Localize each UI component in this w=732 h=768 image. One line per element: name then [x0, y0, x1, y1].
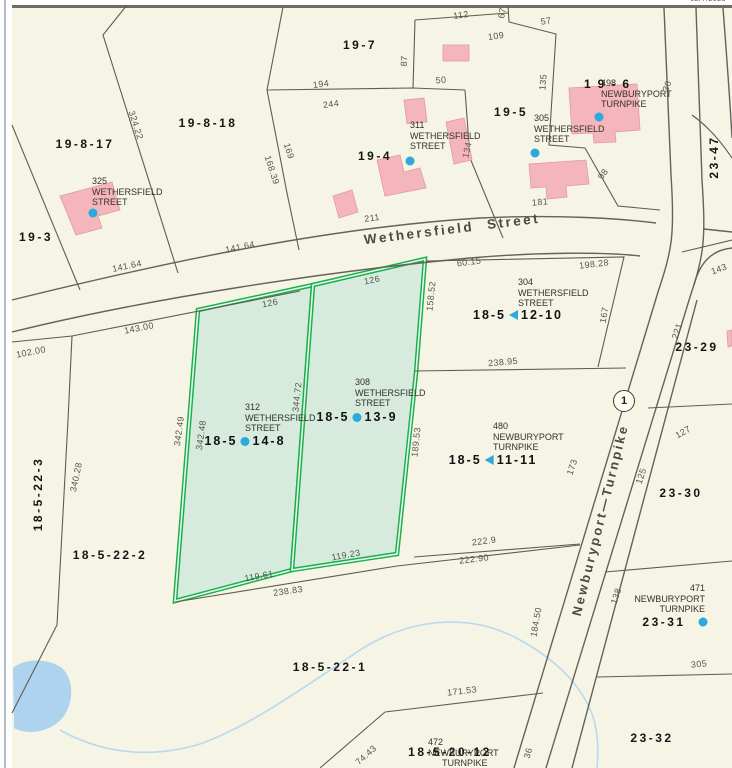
parcel-label-23-30: 23-30 [659, 486, 702, 500]
map-canvas[interactable]: 02/7/2025 Wethersfield Street Newburypor… [0, 0, 732, 768]
parcel-label-suffix: 12-10 [521, 308, 563, 322]
building-small [443, 45, 469, 61]
address-label-471-newburyport: 471NEWBURYPORTTURNPIKE [625, 583, 705, 615]
parcel-label-18-5-13-9: 18-5 13-9 [316, 410, 397, 424]
address-label-312-wethersfield: 312WETHERSFIELDSTREET [245, 402, 316, 434]
parcel-point-marker[interactable] [406, 157, 415, 166]
parcel-label-19-4: 19-4 [358, 149, 392, 163]
parcel-label-23-31: 23-31 [642, 615, 685, 629]
dimension-label: 57 [540, 15, 552, 26]
parcel-label-18-5-22-2: 18-5-22-2 [73, 548, 148, 562]
parcel-label-prefix: 18-5 [449, 453, 482, 467]
dimension-label: 211 [364, 212, 381, 224]
parcel-label-18-5-22-3: 18-5-22-3 [31, 457, 45, 532]
parcel-label-18-5-22-1: 18-5-22-1 [293, 660, 368, 674]
stream [60, 622, 598, 768]
parcel-label-prefix: 18-5 [473, 308, 506, 322]
pond [13, 661, 71, 733]
parcel-label-19-8-17: 19-8-17 [56, 137, 115, 151]
parcel-label-18-5-11-11: 18-5 11-11 [449, 453, 538, 467]
point-marker-icon[interactable] [485, 455, 494, 465]
map-date-stamp: 02/7/2025 [690, 0, 726, 3]
parcel-label-prefix: 18-5 [204, 434, 237, 448]
address-label-305-wethersfield: 305WETHERSFIELDSTREET [534, 113, 605, 145]
route-1-shield: 1 [613, 390, 635, 412]
parcel-label-19-5: 19-5 [494, 105, 528, 119]
parcel-label-19-7: 19-7 [343, 38, 377, 52]
address-label-472-newburyport: 472NEWBURYPORTTURNPIKE [428, 737, 499, 768]
dimension-label: 87 [399, 55, 410, 66]
parcel-label-23-32: 23-32 [630, 731, 673, 745]
parcel-label-suffix: 14-8 [253, 434, 286, 448]
parcel-label-18-5-12-10: 18-5 12-10 [473, 308, 563, 322]
dimension-label: 67 [496, 7, 508, 19]
parcel-label-19-3: 19-3 [19, 230, 53, 244]
parcel-label-23-47: 23-47 [707, 135, 721, 178]
parcel-point-marker[interactable] [89, 209, 98, 218]
building-305 [529, 160, 589, 199]
parcel-label-23-29: 23-29 [675, 340, 718, 354]
address-label-480-newburyport: 480NEWBURYPORTTURNPIKE [493, 421, 564, 453]
dimension-label: 135 [537, 73, 548, 90]
point-marker-icon[interactable] [509, 310, 518, 320]
dimension-label: 305 [690, 658, 707, 669]
address-label-498-newburyport: 498NEWBURYPORTTURNPIKE [601, 78, 672, 110]
building-edge-sliver [727, 330, 732, 347]
turnpike-east-edge-top [723, 8, 732, 138]
parcel-label-prefix: 18-5 [316, 410, 349, 424]
dimension-label: 112 [453, 9, 470, 21]
address-label-308-wethersfield: 308WETHERSFIELDSTREET [355, 377, 426, 409]
wethersfield-north-edge-east [704, 229, 732, 232]
parcel-label-19-8-18: 19-8-18 [179, 116, 238, 130]
point-marker-icon[interactable] [353, 413, 362, 422]
parcel-label-suffix: 13-9 [365, 410, 398, 424]
parcel-label-suffix: 11-11 [497, 453, 538, 467]
address-label-304-wethersfield: 304WETHERSFIELDSTREET [518, 277, 589, 309]
route-number: 1 [621, 395, 627, 407]
dimension-label: 181 [531, 196, 548, 207]
parcel-label-18-5-14-8: 18-5 14-8 [204, 434, 285, 448]
gis-parcel-map-window: 02/7/2025 Wethersfield Street Newburypor… [0, 0, 732, 768]
parcel-point-marker[interactable] [531, 149, 540, 158]
address-label-325-wethersfield: 325WETHERSFIELDSTREET [92, 176, 163, 208]
parcel-point-marker[interactable] [699, 618, 708, 627]
point-marker-icon[interactable] [241, 437, 250, 446]
building-19-4b [333, 190, 358, 218]
dimension-label: 50 [435, 75, 447, 86]
